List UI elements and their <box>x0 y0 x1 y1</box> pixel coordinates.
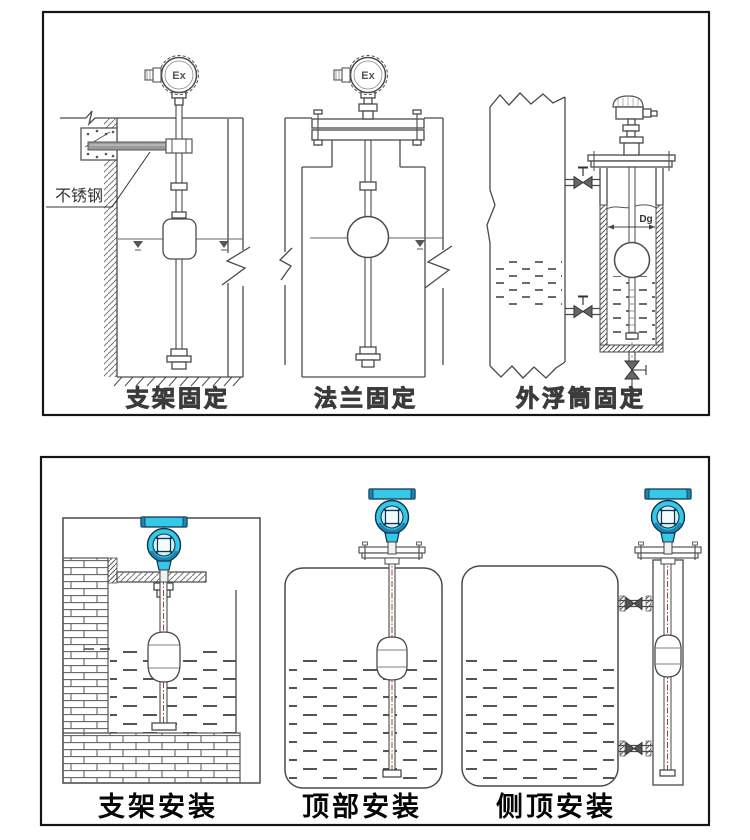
diagram-bracket-installation <box>63 517 260 783</box>
bottom-panel: 支架安装 顶部安装 侧顶安装 <box>41 457 709 825</box>
float <box>163 219 196 259</box>
chamber-wall-right <box>656 205 663 345</box>
caption-bracket-fixing: 支架固定 <box>125 385 230 411</box>
flange-plate <box>312 119 424 128</box>
rod-end-stop <box>660 770 675 776</box>
caption-flange-fixing: 法兰固定 <box>314 385 418 411</box>
caption-side-top-installation: 侧顶安装 <box>496 792 616 822</box>
water <box>466 656 614 782</box>
tank-liquid <box>493 258 562 307</box>
rod-end-stop <box>152 723 176 730</box>
chamber-wall-left <box>600 205 607 345</box>
chamber-bottom <box>600 345 663 352</box>
float <box>148 632 180 682</box>
ex-marking-2: Ex <box>361 70 375 82</box>
brick-platform <box>63 733 240 783</box>
float <box>377 637 407 680</box>
float-ball <box>615 243 650 278</box>
float <box>655 635 681 677</box>
float-ball <box>348 217 389 258</box>
top-panel: Ex 不锈钢 Ex <box>43 12 709 415</box>
ex-marking-1: Ex <box>172 70 186 82</box>
water <box>289 658 438 784</box>
rod-clamp <box>166 139 192 153</box>
caption-top-installation: 顶部安装 <box>302 791 422 822</box>
dg-dimension-label: Dg <box>639 214 652 225</box>
stainless-steel-label: 不锈钢 <box>55 187 103 205</box>
diagram-canvas: Ex 不锈钢 Ex <box>0 0 750 840</box>
rod-end-stop <box>383 770 401 777</box>
brick-wall <box>63 558 108 733</box>
caption-bracket-installation: 支架安装 <box>98 792 218 822</box>
caption-external-chamber-fixing: 外浮筒固定 <box>516 385 646 411</box>
float-level-transmitter-installation-figure: Ex 不锈钢 Ex <box>0 0 750 840</box>
